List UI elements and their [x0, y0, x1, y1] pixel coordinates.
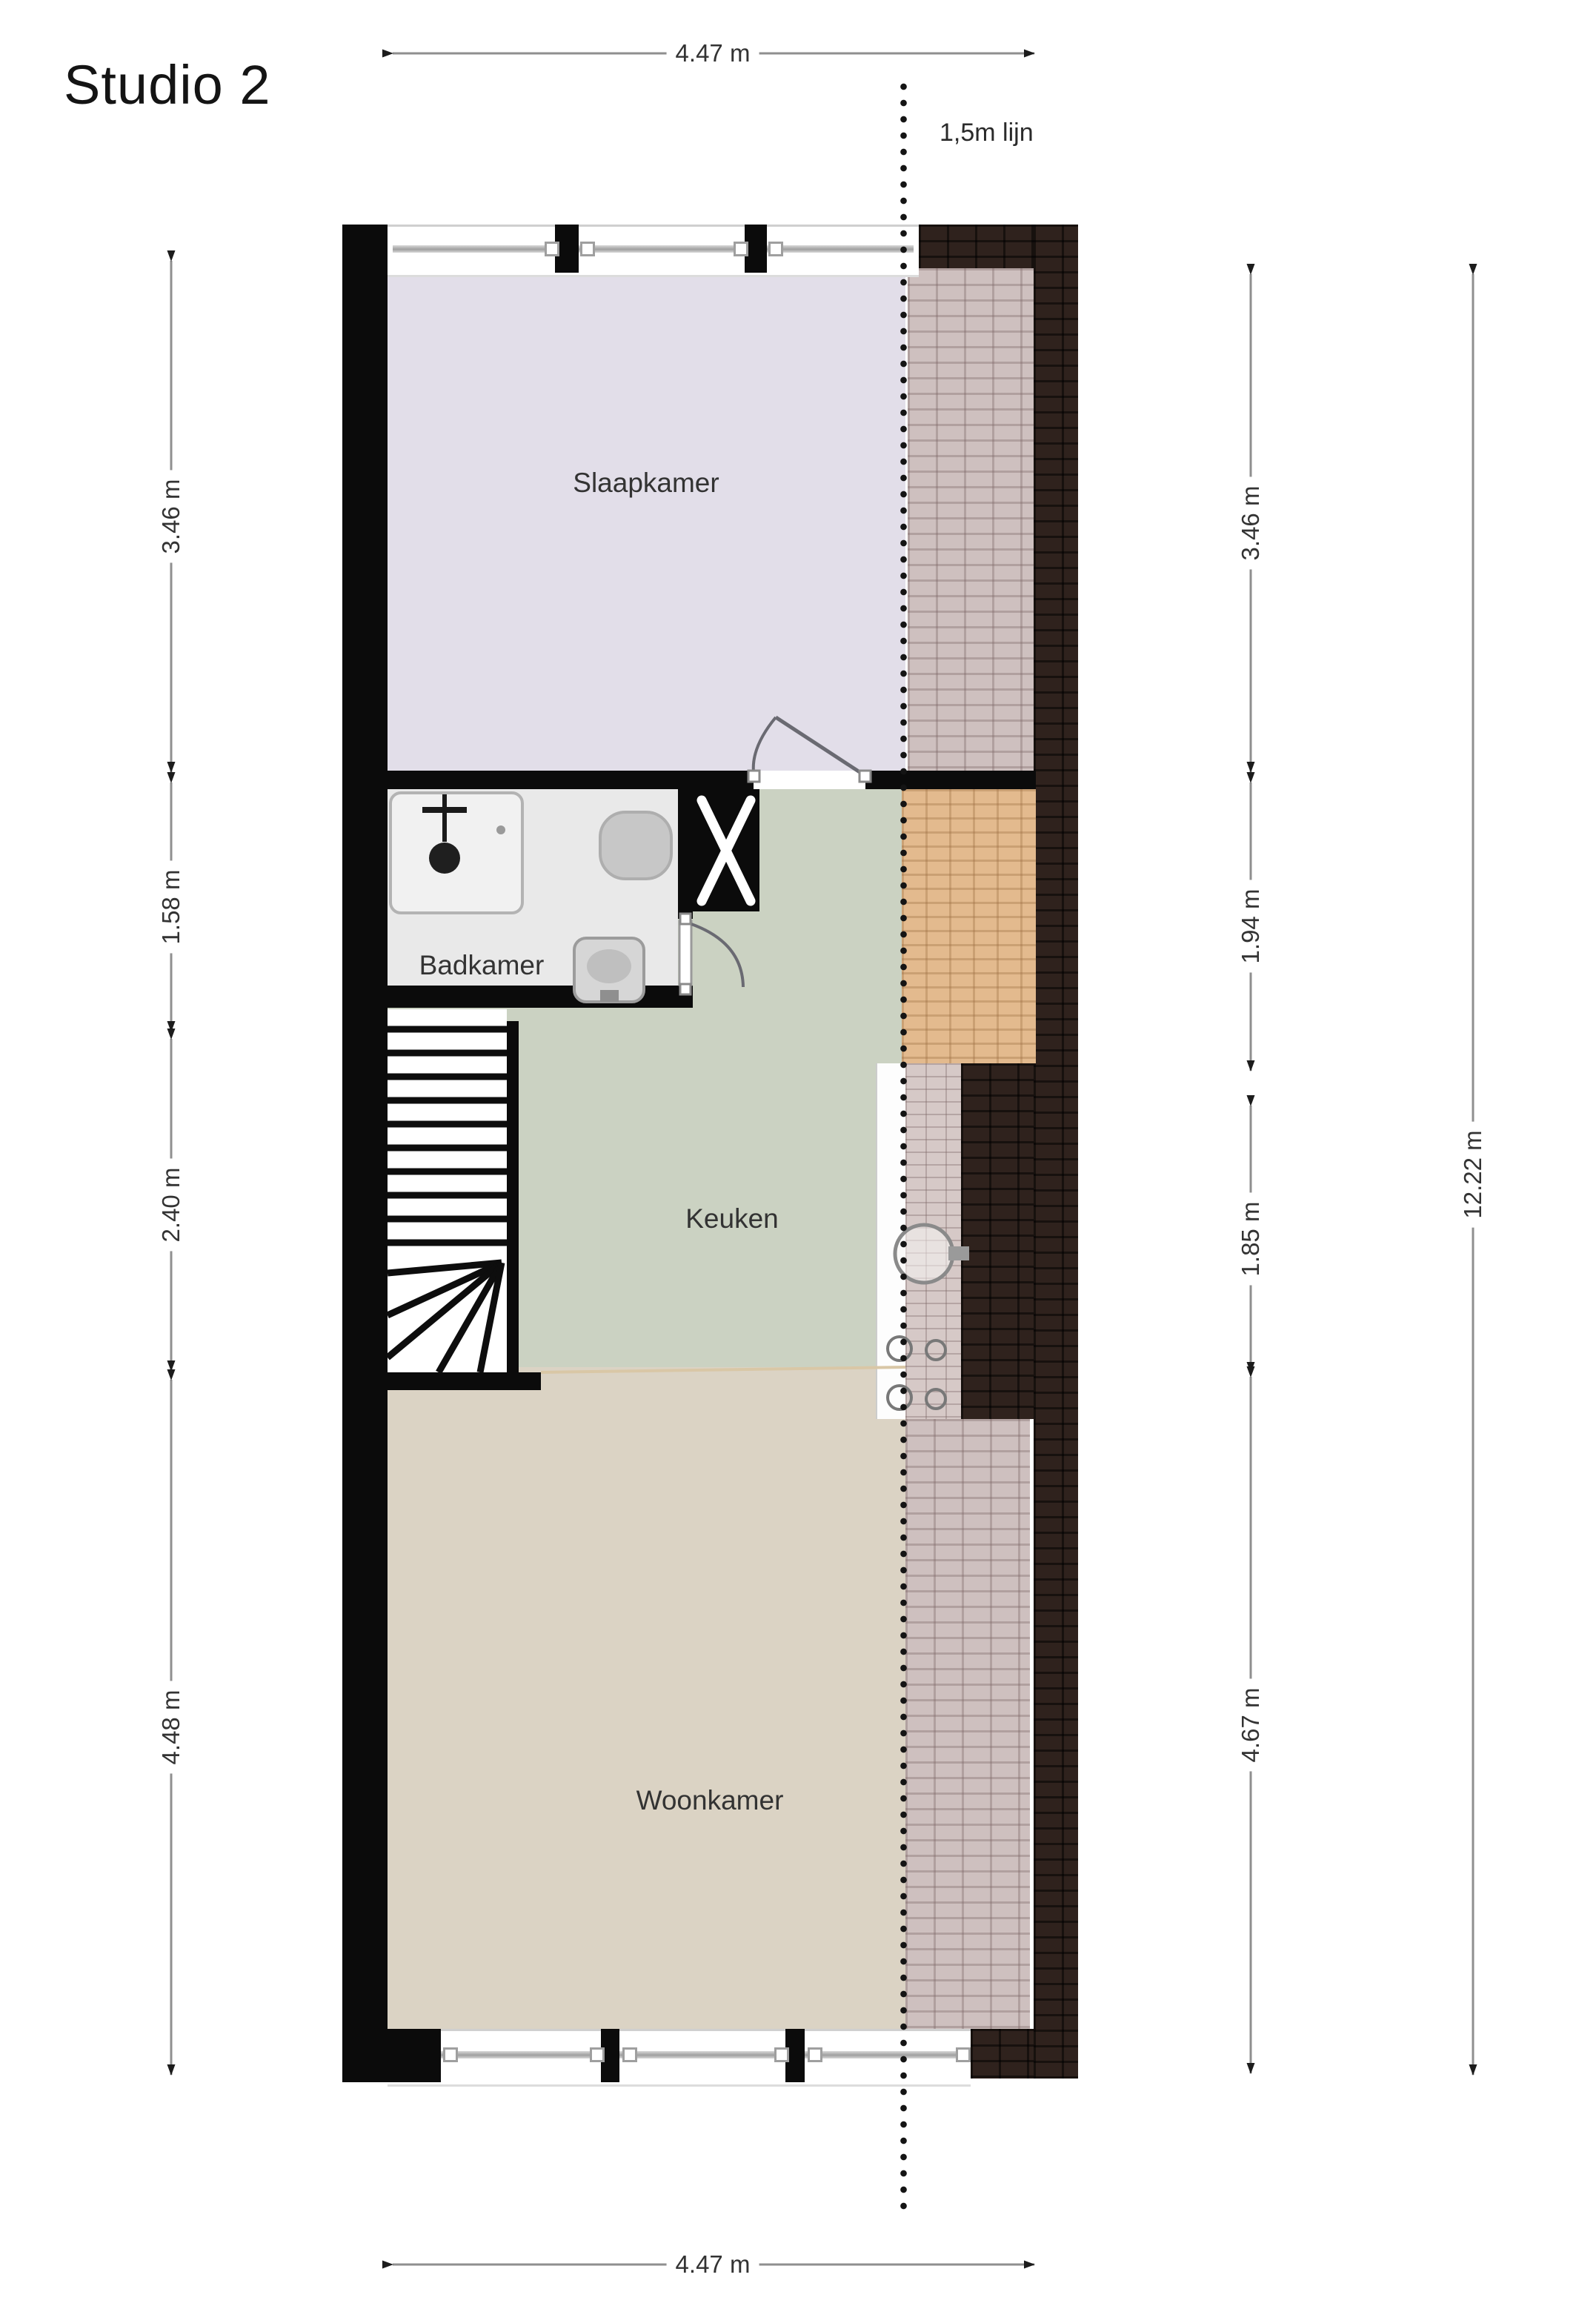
kitchen-counter-tiles	[905, 1063, 961, 1419]
roof-brick-column-right	[1034, 225, 1078, 2079]
window-joint-icon	[734, 242, 748, 256]
low-headroom-strip-slaapkamer	[908, 268, 1034, 783]
room-woonkamer-floor	[388, 1367, 905, 2029]
wall-corner-bottom-left	[342, 2029, 441, 2082]
window-joint-icon	[545, 242, 559, 256]
window-joint-icon	[443, 2047, 458, 2062]
wall-badkamer-south	[388, 986, 693, 1008]
dimension-label-left-2: 1.58 m	[156, 861, 187, 954]
wall-slaapkamer-south-left	[388, 771, 754, 789]
dimension-label-bottom: 4.47 m	[667, 2249, 759, 2280]
window-joint-icon	[768, 242, 783, 256]
wall-stairs-south	[388, 1372, 541, 1390]
window-joint-icon	[590, 2047, 605, 2062]
wall-slaapkamer-south-right	[865, 771, 1036, 789]
room-label-keuken: Keuken	[685, 1203, 779, 1235]
low-headroom-strip-woonkamer	[905, 1419, 1030, 2029]
wall-stairs-east	[507, 1021, 519, 1375]
room-label-woonkamer: Woonkamer	[636, 1785, 784, 1816]
low-headroom-strip-keuken	[902, 789, 1036, 1063]
room-label-badkamer: Badkamer	[419, 950, 545, 981]
height-line-label: 1,5m lijn	[940, 119, 1034, 147]
wall-badkamer-east	[678, 789, 693, 919]
stairwell-area	[388, 1009, 507, 1375]
dimension-label-right-1: 3.46 m	[1235, 477, 1266, 570]
window-joint-icon	[580, 242, 595, 256]
room-label-slaapkamer: Slaapkamer	[573, 468, 719, 499]
window-joint-icon	[774, 2047, 789, 2062]
dimension-label-right-2: 1.94 m	[1235, 880, 1266, 973]
wall-left	[342, 225, 388, 2082]
window-sill-top	[393, 245, 914, 253]
floorplan-page: Studio 2	[0, 0, 1596, 2306]
window-joint-icon	[622, 2047, 637, 2062]
roof-brick-counter-extension	[961, 1063, 1034, 1419]
dimension-label-right-4: 4.67 m	[1235, 1679, 1266, 1772]
dimension-label-right-3: 1.85 m	[1235, 1193, 1266, 1286]
dimension-label-total: 12.22 m	[1457, 1121, 1489, 1227]
dimension-label-left-4: 4.48 m	[156, 1681, 187, 1774]
room-slaapkamer-floor	[388, 273, 905, 771]
shaft-box	[693, 789, 759, 911]
dimension-label-top: 4.47 m	[667, 38, 759, 69]
dimension-label-left-3: 2.40 m	[156, 1159, 187, 1252]
page-title: Studio 2	[64, 53, 271, 116]
roof-brick-corner-bottom	[971, 2029, 1034, 2079]
window-joint-icon	[808, 2047, 822, 2062]
window-sill-bottom	[393, 2051, 967, 2059]
window-joint-icon	[956, 2047, 971, 2062]
height-line-1-5m	[900, 83, 907, 2212]
dimension-label-left-1: 3.46 m	[156, 471, 187, 563]
